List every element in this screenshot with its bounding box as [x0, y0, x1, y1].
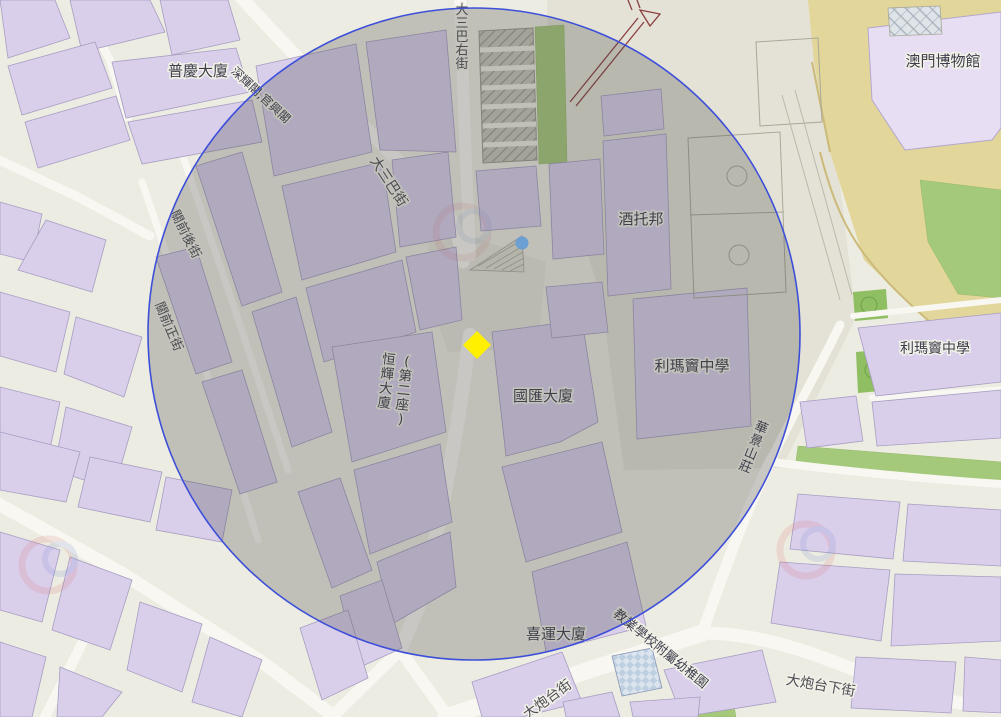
label-museum-macau: 澳門博物館	[905, 52, 980, 70]
poi-dot[interactable]	[516, 237, 529, 250]
label-school-limadou-2: 利瑪竇中學	[900, 341, 970, 357]
map-canvas[interactable]: 普慶大廈 澳門博物館 深輝閣,官興閣 大三巴右街 大三巴街 酒托邦 利瑪竇中學 …	[0, 0, 1001, 717]
map-viewport[interactable]: 普慶大廈 澳門博物館 深輝閣,官興閣 大三巴右街 大三巴街 酒托邦 利瑪竇中學 …	[0, 0, 1001, 717]
museum-hatched-roof	[888, 6, 942, 36]
label-building-puqing: 普慶大廈	[168, 62, 228, 80]
